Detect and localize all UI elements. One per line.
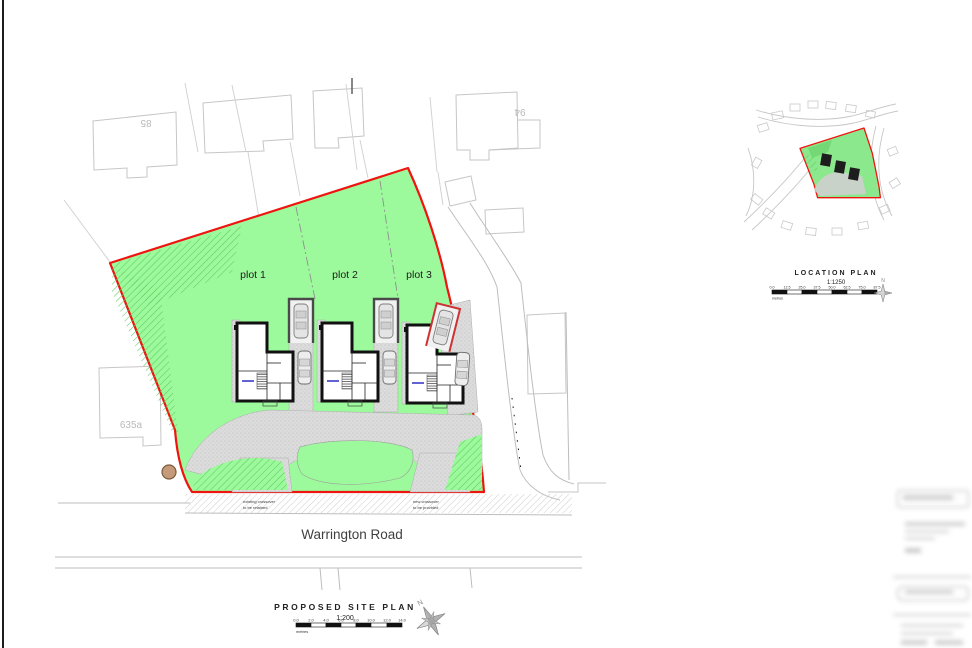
parked-car-plot-1 <box>298 351 311 384</box>
svg-text:metres: metres <box>772 297 783 301</box>
svg-text:0.0: 0.0 <box>770 286 775 290</box>
svg-text:50.0: 50.0 <box>829 286 836 290</box>
plot-3-label: plot 3 <box>406 269 432 281</box>
garage-plot-2 <box>374 299 398 343</box>
site-plan-title: PROPOSED SITE PLAN <box>274 602 416 612</box>
svg-text:to be retained: to be retained <box>243 505 267 510</box>
svg-text:37.5: 37.5 <box>814 286 821 290</box>
svg-text:metres: metres <box>296 629 308 634</box>
site-plan-drawing: 85 94 635a <box>0 0 972 648</box>
site-plan-north-label: N <box>417 599 425 608</box>
tree-symbol <box>162 465 176 479</box>
svg-text:4.0: 4.0 <box>323 618 329 623</box>
svg-text:12.5: 12.5 <box>784 286 791 290</box>
parked-car-plot-2 <box>383 351 396 384</box>
titleblock-blurred <box>891 468 972 648</box>
location-plan-site <box>800 128 880 198</box>
svg-text:10.0: 10.0 <box>367 618 376 623</box>
location-plan-north-label: N <box>881 278 885 284</box>
lawn-island <box>297 441 413 485</box>
neighbor-label-85: 85 <box>140 117 152 128</box>
svg-text:8.0: 8.0 <box>353 618 359 623</box>
plot-1-label: plot 1 <box>240 269 266 281</box>
neighbor-label-94: 94 <box>514 106 526 117</box>
svg-text:existing crossover: existing crossover <box>243 499 276 504</box>
crossover-annotation-right: new crossover to be provided <box>413 499 439 510</box>
neighbor-label-635a: 635a <box>120 420 143 431</box>
svg-text:2.0: 2.0 <box>308 618 314 623</box>
svg-text:75.0: 75.0 <box>859 286 866 290</box>
svg-text:14.0: 14.0 <box>398 618 407 623</box>
svg-text:6.0: 6.0 <box>338 618 344 623</box>
parked-car-plot-3 <box>455 352 470 386</box>
svg-text:0.0: 0.0 <box>293 618 299 623</box>
lane-dashed-marks <box>512 398 521 470</box>
svg-text:to be provided: to be provided <box>413 505 438 510</box>
svg-text:new crossover: new crossover <box>413 499 439 504</box>
svg-text:25.0: 25.0 <box>799 286 806 290</box>
location-plan-title: LOCATION PLAN <box>794 270 877 277</box>
drawing-sheet: 85 94 635a <box>0 0 972 648</box>
road-name-label: Warrington Road <box>301 527 403 542</box>
location-plan-map <box>744 101 900 236</box>
svg-text:62.5: 62.5 <box>844 286 851 290</box>
site-plan-north-arrow: N <box>406 592 453 642</box>
location-plan-scalebar: 0.0 12.5 25.0 37.5 50.0 62.5 75.0 87.5 m… <box>770 286 881 301</box>
svg-text:87.5: 87.5 <box>874 286 881 290</box>
svg-text:12.0: 12.0 <box>383 618 392 623</box>
plot-2-label: plot 2 <box>332 269 358 281</box>
sheet-left-border <box>2 0 4 648</box>
garage-plot-1 <box>289 299 313 343</box>
